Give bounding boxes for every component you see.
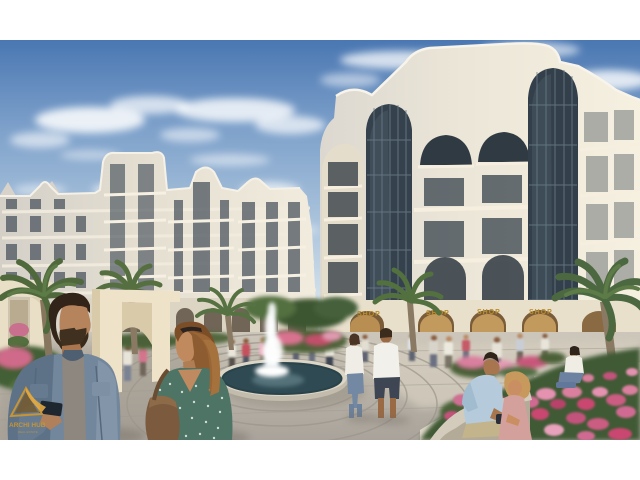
svg-text:ARCHI HUB: ARCHI HUB [9,422,46,429]
svg-text:SHOP: SHOP [477,309,501,316]
svg-text:SHOP: SHOP [529,309,553,316]
svg-text:SHOP: SHOP [357,311,381,318]
svg-text:REAL ESTATE: REAL ESTATE [18,430,38,434]
